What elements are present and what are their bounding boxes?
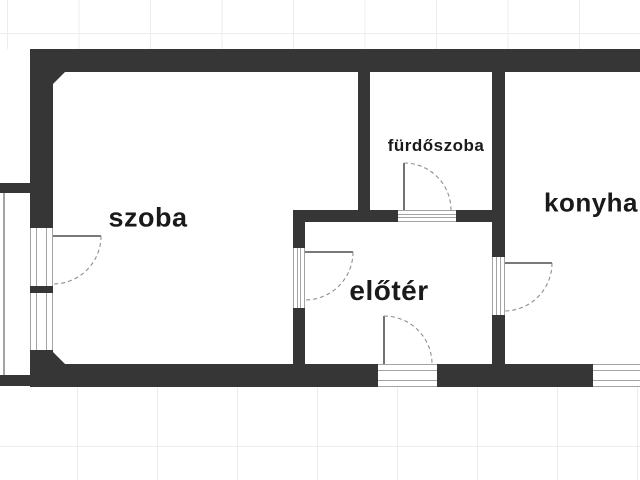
balcony-edge-line [3,185,5,385]
wall-furdoszoba-bottom-left [293,210,398,222]
wall-exterior-top [30,49,640,72]
balcony-floor [4,185,30,385]
background-grid-top [0,0,640,49]
door-threshold-konyha [492,257,505,315]
wall-furdoszoba-bottom-right [456,210,492,222]
balcony-window-mullion [30,286,53,293]
window-konyha-bottom [593,364,640,387]
room-label-szoba: szoba [108,203,187,234]
wall-eloter-konyha-upper [492,72,505,257]
entry-door-threshold [378,364,437,387]
door-threshold-szoba-eloter [293,248,305,308]
room-label-konyha: konyha [544,188,638,219]
room-label-eloter: előtér [349,275,428,307]
floor-plan: szoba fürdőszoba előtér konyha [0,0,640,480]
background-grid-bottom [0,388,640,480]
wall-eloter-konyha-lower [492,315,505,364]
room-label-furdoszoba: fürdőszoba [388,136,485,156]
wall-exterior-bottom-middle [437,364,593,387]
wall-exterior-bottom-left [30,364,378,387]
wall-balcony-stub-bottom [0,375,30,386]
wall-exterior-left-upper [30,49,53,228]
wall-balcony-stub-top [0,183,30,193]
wall-eloter-left-lower [293,308,305,364]
wall-szoba-furdoszoba [358,72,370,222]
door-threshold-furdoszoba [398,210,456,222]
wall-eloter-left-upper [293,210,305,248]
